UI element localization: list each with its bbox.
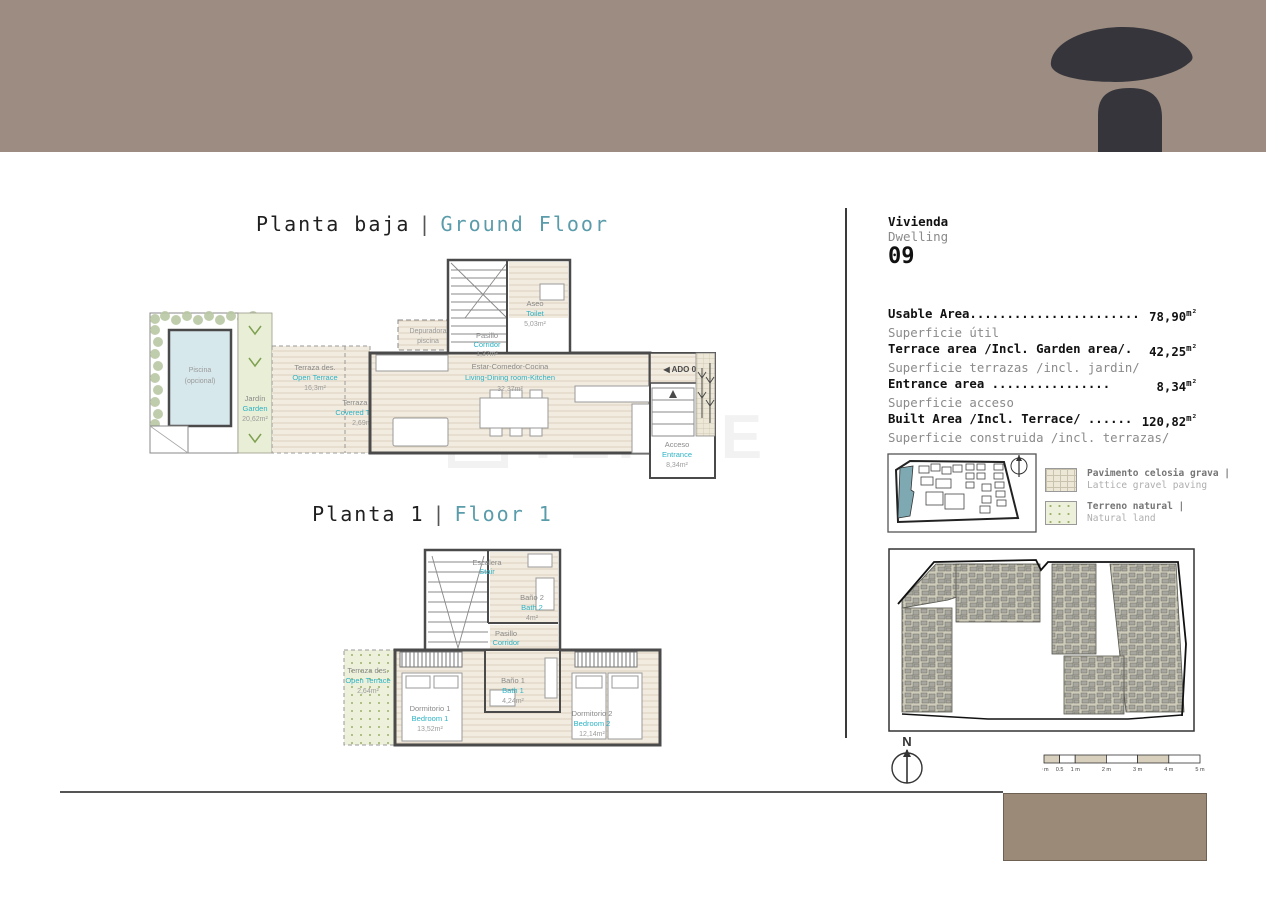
- area-value: 78,90: [1149, 310, 1186, 324]
- pool-label-2: (opcional): [185, 378, 216, 385]
- scale-tick: 5 m: [1195, 767, 1205, 773]
- living-label-es: Estar-Comedor-Cocina: [472, 362, 550, 371]
- footer-rule: [60, 791, 1003, 793]
- scale-tick: 3 m: [1133, 767, 1143, 773]
- bath2-label-en: Bath 2: [521, 603, 543, 612]
- key-map: [886, 452, 1038, 536]
- bedroom2-label-en: Bedroom 2: [574, 719, 611, 728]
- floor1-hall-label-es: Pasillo: [495, 629, 517, 638]
- north-arrow: N: [885, 733, 931, 791]
- dwelling-header: Vivienda Dwelling 09: [888, 214, 948, 269]
- garden-label-es: Jardín: [245, 394, 266, 403]
- logo-pillar-icon: [1098, 88, 1162, 152]
- bath1-label-es: Baño 1: [501, 676, 525, 685]
- legend-row-gravel: Pavimento celosia grava | Lattice gravel…: [1045, 468, 1230, 492]
- area-label-es: Superficie acceso: [888, 395, 1197, 411]
- floor1-terrace-label-en: Open Terrace: [345, 676, 390, 685]
- ground-title-en: Ground Floor: [441, 212, 610, 236]
- entrance-label-en: Entrance: [662, 450, 692, 459]
- area-unit: m²: [1186, 309, 1197, 319]
- area-unit: m²: [1186, 344, 1197, 354]
- ground-floor-plan: Piscina (opcional) Jardín Garden 20,62m²…: [145, 258, 720, 483]
- floor1-title: Planta 1|Floor 1: [145, 502, 720, 526]
- bedroom1-label-en: Bedroom 1: [412, 714, 449, 723]
- scale-tick: 2 m: [1102, 767, 1112, 773]
- entrance-label-area: 8,34m²: [666, 462, 688, 469]
- garden-label-en: Garden: [242, 404, 267, 413]
- bath1-label-en: Bath 1: [502, 686, 524, 695]
- bath2-label-area: 4m²: [526, 615, 539, 622]
- ground-title-es: Planta baja: [256, 212, 410, 236]
- wardrobe-1: [400, 652, 462, 667]
- ground-title-divider: |: [410, 212, 440, 236]
- legend-row-natural: Terreno natural | Natural land: [1045, 501, 1230, 525]
- bedroom2-label-area: 12,14m²: [579, 731, 605, 738]
- area-label-es: Superficie terrazas /incl. jardin/: [888, 360, 1197, 376]
- area-value: 120,82: [1142, 415, 1186, 429]
- open-terrace-label-es: Terraza des.: [294, 363, 335, 372]
- entrance-planting: [696, 353, 715, 436]
- area-row-terrace: Terrace area /Incl. Garden area/. 42,25m…: [888, 341, 1197, 376]
- natural-swatch-icon: [1045, 501, 1077, 525]
- garden-label-area: 20,62m²: [242, 416, 268, 423]
- stair-label-en: Stair: [479, 567, 495, 576]
- legend-natural-en: Natural land: [1087, 513, 1184, 525]
- floor1-open-terrace: [344, 650, 395, 745]
- gravel-swatch-icon: [1045, 468, 1077, 492]
- ado-label: ◀ ADO 09: [663, 365, 702, 374]
- bath1-label-area: 4,24m²: [502, 698, 524, 705]
- hall-label-en: Corridor: [473, 340, 501, 349]
- depuradora-label-2: piscina: [417, 338, 439, 345]
- open-terrace-label-area: 16,3m²: [304, 385, 326, 392]
- bath2-label-es: Baño 2: [520, 593, 544, 602]
- logo-dome-icon: [1051, 27, 1193, 82]
- legend-gravel-en: Lattice gravel paving: [1087, 480, 1230, 492]
- scale-tick: 0.5: [1056, 767, 1064, 773]
- floor1-hall-label-en: Corridor: [492, 638, 520, 647]
- area-unit: m²: [1186, 414, 1197, 424]
- dwelling-number: 09: [888, 245, 948, 269]
- floor1-title-divider: |: [424, 502, 454, 526]
- floor1-title-es: Planta 1: [312, 502, 424, 526]
- depuradora-label-1: Depuradora: [410, 328, 447, 335]
- open-terrace-label-en: Open Terrace: [292, 373, 337, 382]
- area-label: Usable Area.......................: [888, 306, 1140, 325]
- vivienda-label: Vivienda: [888, 214, 948, 229]
- bedroom2-label-es: Dormitorio 2: [572, 709, 613, 718]
- legend-natural-es: Terreno natural |: [1087, 501, 1184, 513]
- floor1-title-en: Floor 1: [455, 502, 553, 526]
- bedroom1-label-area: 13,52m²: [417, 726, 443, 733]
- area-label-es: Superficie construida /incl. terrazas/: [888, 430, 1197, 446]
- panel-divider: [845, 208, 847, 738]
- header-band: [0, 0, 1266, 152]
- area-row-built: Built Area /Incl. Terrace/ ...... 120,82…: [888, 411, 1197, 446]
- pool-label-1: Piscina: [189, 367, 212, 374]
- scale-tick: 4 m: [1164, 767, 1174, 773]
- hall-label-area: 1,37m²: [476, 351, 498, 358]
- legend: Pavimento celosia grava | Lattice gravel…: [1045, 468, 1230, 534]
- north-label: N: [902, 734, 911, 749]
- area-unit: m²: [1186, 379, 1197, 389]
- area-row-entrance: Entrance area ................ 8,34m² Su…: [888, 376, 1197, 411]
- area-label: Entrance area ................: [888, 376, 1110, 395]
- toilet-label-en: Toilet: [526, 309, 544, 318]
- legend-gravel-es: Pavimento celosia grava |: [1087, 468, 1230, 480]
- area-label: Terrace area /Incl. Garden area/.: [888, 341, 1132, 360]
- stair-label-es: Escalera: [472, 558, 502, 567]
- scale-bar: 0 m 0.5 1 m 2 m 3 m 4 m 5 m: [1042, 750, 1207, 778]
- scale-tick: 1 m: [1071, 767, 1081, 773]
- area-label: Built Area /Incl. Terrace/ ......: [888, 411, 1132, 430]
- living-label-en: Living-Dining room-Kitchen: [465, 373, 555, 382]
- hall-label-es: Pasillo: [476, 331, 498, 340]
- ground-floor-title: Planta baja|Ground Floor: [145, 212, 720, 236]
- site-plan: [888, 548, 1195, 732]
- dwelling-label: Dwelling: [888, 229, 948, 244]
- footer-brand-block: [1003, 793, 1207, 861]
- page: TEKCE Planta baja|Ground Floor: [0, 0, 1266, 902]
- wardrobe-2: [575, 652, 637, 667]
- bedroom1-label-es: Dormitorio 1: [410, 704, 451, 713]
- floor1-plan: Escalera Stair Baño 2 Bath 2 4m² Pasillo…: [340, 548, 665, 755]
- entrance-label-es: Acceso: [665, 440, 690, 449]
- floor1-terrace-label-area: 2,64m²: [357, 688, 379, 695]
- floor1-terrace-label-es: Terraza des.: [347, 666, 388, 675]
- area-table: Usable Area....................... 78,90…: [888, 306, 1197, 446]
- area-value: 42,25: [1149, 345, 1186, 359]
- toilet-label-area: 5,03m²: [524, 321, 546, 328]
- living-label-area: 32,37m²: [497, 386, 523, 393]
- toilet-label-es: Aseo: [526, 299, 543, 308]
- area-row-usable: Usable Area....................... 78,90…: [888, 306, 1197, 341]
- area-label-es: Superficie útil: [888, 325, 1197, 341]
- scale-tick: 0 m: [1042, 767, 1049, 773]
- brand-logo: [1020, 0, 1266, 152]
- area-value: 8,34: [1157, 380, 1187, 394]
